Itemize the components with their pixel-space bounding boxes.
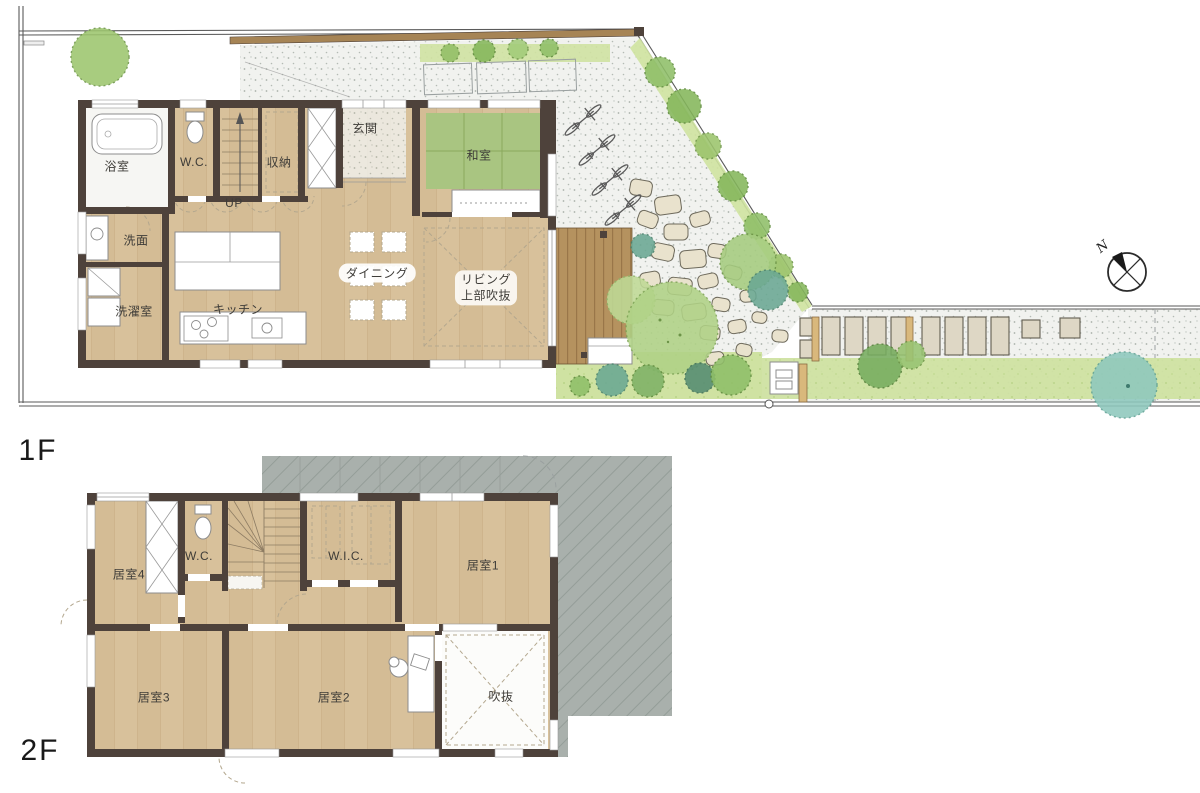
room-label-room2: 居室2 [318,689,350,706]
floor1-title: 1F [18,434,57,468]
floor2-plan [61,456,672,783]
room-label-room3: 居室3 [138,689,170,706]
room-label-room1: 居室1 [467,557,499,574]
room-label-wc-2f: W.C. [185,549,213,563]
living-line2: 上部吹抜 [461,288,511,302]
room-label-room4: 居室4 [113,566,145,583]
floor2-title: 2F [20,734,59,768]
room-label-living: リビング 上部吹抜 [455,270,517,305]
room-label-void: 吹抜 [488,688,513,705]
floor-plan-page: 浴室 W.C. 収納 玄関 和室 UP 洗面 洗濯室 キッチン ダイニング リビ… [0,0,1200,793]
room-label-bath: 浴室 [104,158,129,175]
room-label-washroom: 洗面 [123,232,148,249]
label-up: UP [225,196,243,210]
living-line1: リビング [461,272,511,286]
room-label-dining: ダイニング [339,264,416,283]
room-label-tatami: 和室 [466,147,491,164]
room-label-kitchen: キッチン [213,301,263,318]
room-label-storage: 収納 [266,154,291,171]
room-label-entrance: 玄関 [352,120,377,137]
room-label-laundry: 洗濯室 [115,303,153,320]
floor1-plan [78,100,556,368]
room-label-wic: W.I.C. [328,549,364,563]
room-label-wc-1f: W.C. [180,155,208,169]
plan-canvas [0,0,1200,793]
north-arrow-icon [1108,252,1146,291]
